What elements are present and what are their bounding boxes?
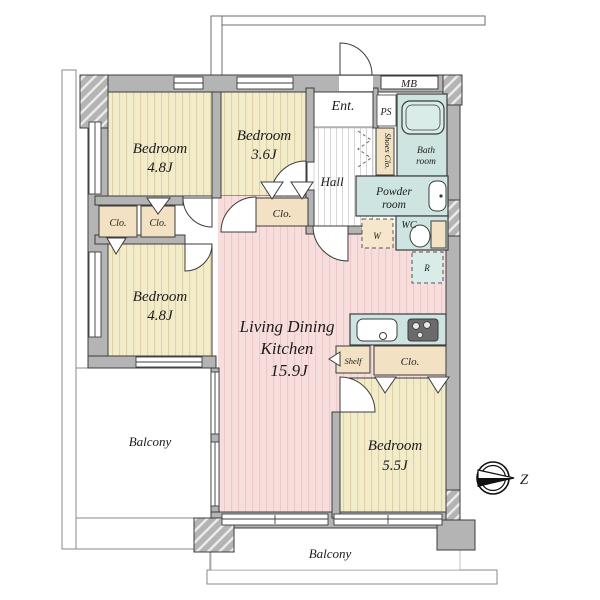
- bedroom-1-label: Bedroom: [133, 141, 188, 157]
- floorplan-canvas: Z Bedroom 4.8J Bedroom 3.6J Bedroom 4.8J…: [0, 0, 600, 600]
- entrance-opening: [339, 76, 373, 91]
- powder-sink-faucet: [439, 194, 442, 197]
- bedroom-4-size: 5.5J: [382, 458, 409, 474]
- closet-a-label: Clo.: [110, 218, 127, 229]
- burner-1: [413, 323, 420, 330]
- compass: Z: [477, 462, 529, 494]
- bathroom-label-line2: room: [416, 157, 436, 167]
- floorplan-svg: Z Bedroom 4.8J Bedroom 3.6J Bedroom 4.8J…: [0, 0, 600, 600]
- balcony-bottom-label: Balcony: [309, 546, 352, 561]
- powder-sink: [429, 181, 446, 211]
- pipe-shaft-label: PS: [379, 107, 391, 118]
- closet-b-label: Clo.: [150, 218, 167, 229]
- door-entrance: [340, 43, 372, 75]
- wall-bed2-ent: [306, 88, 314, 162]
- bedroom-4-label: Bedroom: [368, 438, 423, 454]
- hall-label: Hall: [319, 174, 344, 189]
- bathroom-label-line1: Bath: [417, 146, 435, 156]
- bedroom-3-label: Bedroom: [133, 289, 188, 305]
- powder-room-label-line1: Powder: [375, 186, 412, 198]
- stove: [408, 319, 438, 341]
- shoes-closet-label: Shoes Clo.: [383, 133, 393, 169]
- corner-block: [437, 520, 475, 550]
- wall-right: [446, 92, 460, 526]
- compass-north-label: Z: [520, 472, 529, 488]
- closet-bed4-label: Clo.: [401, 356, 420, 368]
- ldk-label-line1: Living Dining: [239, 317, 335, 336]
- wc-label: WC: [402, 220, 417, 231]
- ldk-label-line2: Kitchen: [260, 339, 314, 358]
- fridge-label: R: [423, 263, 430, 273]
- shelf-label: Shelf: [345, 356, 364, 366]
- ldk-size: 15.9J: [270, 361, 309, 380]
- bedroom-2-size: 3.6J: [250, 147, 278, 163]
- burner-2: [424, 322, 431, 329]
- hatch-right-bottom: [446, 490, 460, 520]
- toilet-tank: [431, 221, 446, 248]
- wall-bed1-bed2: [212, 92, 221, 198]
- powder-room-label-line2: room: [382, 199, 406, 211]
- entrance-label: Ent.: [331, 99, 355, 114]
- bedroom-3-size: 4.8J: [147, 308, 174, 324]
- burner-3: [417, 332, 422, 337]
- bedroom-2-label: Bedroom: [237, 128, 292, 144]
- kitchen-sink: [357, 319, 397, 341]
- hatch-top-left: [80, 75, 108, 128]
- wall-under-bed1: [95, 196, 183, 205]
- bedroom-1-size: 4.8J: [147, 160, 174, 176]
- door-bedroom-1: [183, 198, 212, 227]
- meter-box-label: MB: [400, 78, 417, 90]
- wall-ldk-bed4: [332, 412, 340, 518]
- closet-bed2-label: Clo.: [273, 208, 292, 220]
- balcony-left-label: Balcony: [129, 434, 172, 449]
